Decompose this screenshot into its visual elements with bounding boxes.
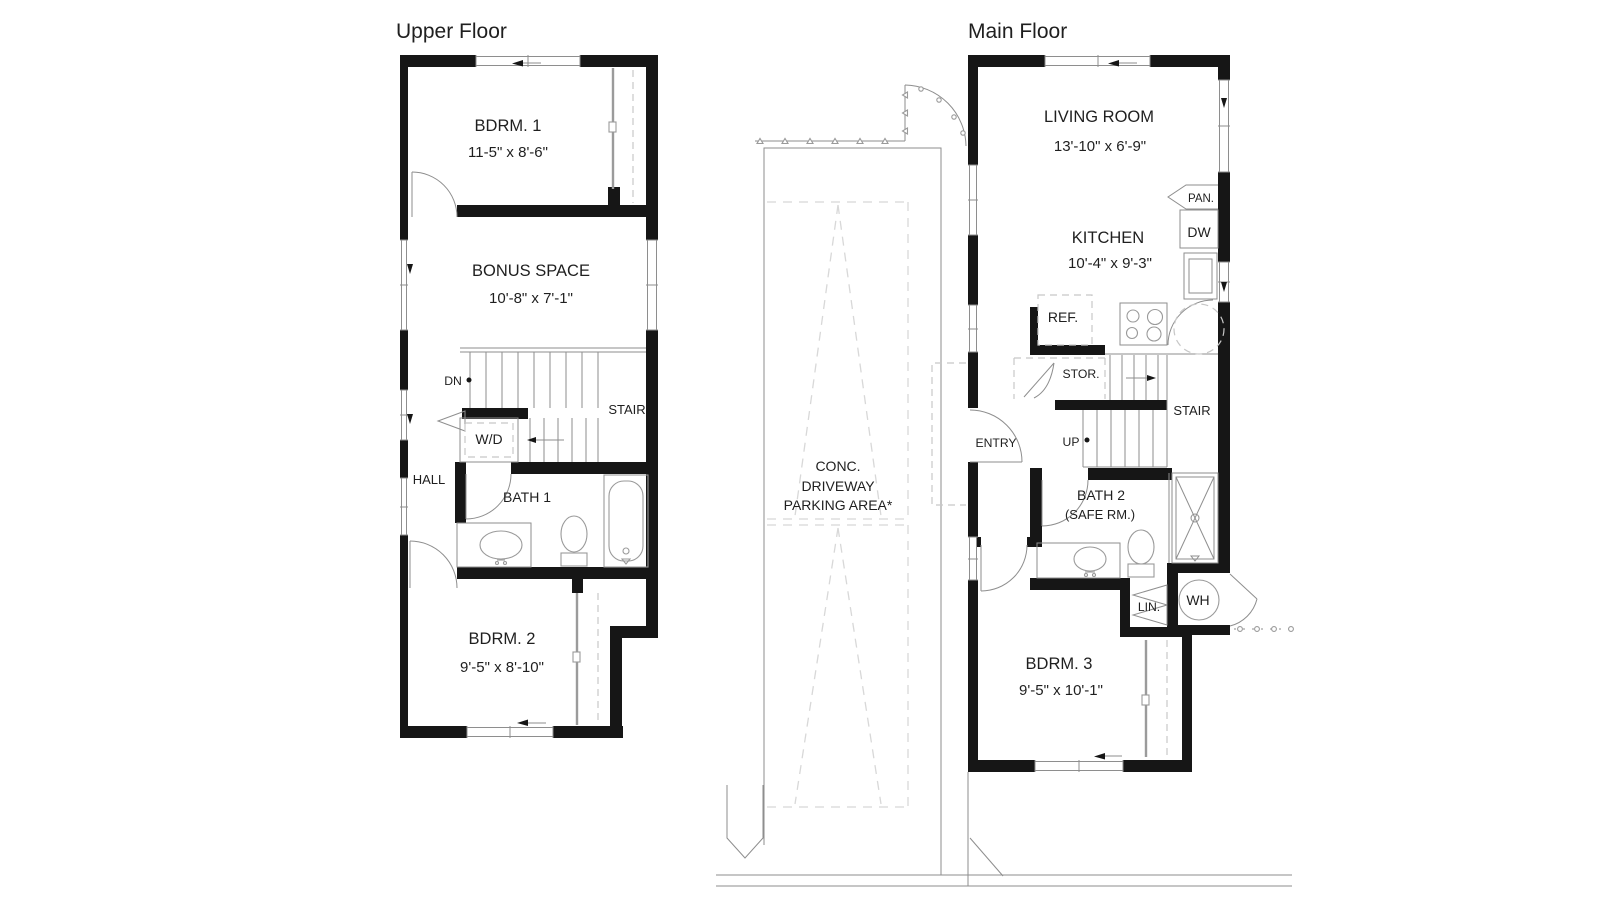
room-label-living: LIVING ROOM bbox=[1044, 108, 1154, 126]
fence-right bbox=[1234, 627, 1293, 632]
window bbox=[400, 390, 408, 440]
room-dims-bdrm1: 11-5" x 8'-6" bbox=[468, 144, 548, 161]
room-dims-bdrm2: 9'-5" x 8'-10" bbox=[460, 659, 544, 676]
dn-marker-dot bbox=[467, 378, 472, 383]
bdrm3-door bbox=[981, 545, 1027, 591]
room-label-bath2: BATH 2 bbox=[1077, 487, 1125, 503]
sink bbox=[480, 531, 522, 559]
floor-plan-sheet: Upper Floor bbox=[0, 0, 1600, 905]
table-dashed bbox=[1174, 304, 1224, 354]
window bbox=[646, 240, 658, 330]
pantry-label: PAN. bbox=[1188, 193, 1214, 205]
hall-label: HALL bbox=[413, 472, 446, 487]
bdrm2-door bbox=[410, 541, 457, 588]
window bbox=[400, 478, 408, 535]
laundry-closet-door bbox=[438, 411, 465, 431]
room-label-bonus: BONUS SPACE bbox=[472, 262, 590, 280]
window bbox=[476, 55, 580, 67]
window bbox=[968, 305, 978, 352]
window bbox=[467, 726, 553, 738]
room-dims-bdrm3: 9'-5" x 10'-1" bbox=[1019, 682, 1103, 699]
driveway-label-line3: PARKING AREA* bbox=[784, 497, 893, 513]
room-dims-living: 13'-10" x 6'-9" bbox=[1054, 138, 1146, 155]
stair-direction-arrow bbox=[1147, 375, 1156, 381]
window bbox=[1045, 55, 1150, 67]
room-label-bdrm2: BDRM. 2 bbox=[469, 630, 536, 648]
sink bbox=[1074, 547, 1106, 571]
stove bbox=[1120, 303, 1167, 345]
wh-door bbox=[1230, 574, 1257, 626]
toilet-tank bbox=[561, 553, 587, 566]
fence bbox=[755, 85, 966, 146]
bdrm1-door bbox=[412, 172, 457, 217]
bath1-fixtures bbox=[457, 475, 648, 567]
driveway-label-line1: CONC. bbox=[815, 458, 860, 474]
room-label-bdrm1: BDRM. 1 bbox=[475, 117, 542, 135]
entry-label: ENTRY bbox=[975, 436, 1016, 450]
stair-label-upper: STAIR bbox=[608, 402, 645, 417]
room-dims-kitchen: 10'-4" x 9'-3" bbox=[1068, 255, 1152, 272]
wd-label: W/D bbox=[475, 431, 502, 447]
floor-plan-drawing: Upper Floor bbox=[0, 0, 1600, 905]
window bbox=[968, 537, 978, 580]
main-floor-title: Main Floor bbox=[968, 20, 1067, 43]
shower bbox=[1169, 473, 1218, 563]
driveway-entry-arrow bbox=[727, 785, 763, 858]
window bbox=[968, 165, 978, 235]
entry-porch-pad bbox=[932, 363, 966, 505]
stair-label-main: STAIR bbox=[1173, 403, 1210, 418]
refrigerator-label: REF. bbox=[1048, 309, 1078, 325]
stair-direction-arrow bbox=[527, 437, 536, 443]
room-sublabel-bath2: (SAFE RM.) bbox=[1065, 507, 1135, 522]
bdrm3-closet bbox=[1142, 640, 1167, 757]
gate-swing bbox=[905, 85, 966, 146]
driveway-label-line2: DRIVEWAY bbox=[801, 478, 875, 494]
up-label: UP bbox=[1063, 435, 1080, 449]
dn-label: DN bbox=[444, 374, 462, 388]
upper-floor-title: Upper Floor bbox=[396, 20, 507, 43]
room-label-bdrm3: BDRM. 3 bbox=[1026, 655, 1093, 673]
storage-label: STOR. bbox=[1062, 367, 1099, 381]
up-marker-dot bbox=[1085, 438, 1090, 443]
water-heater-label: WH bbox=[1186, 592, 1209, 608]
toilet-tank bbox=[1128, 564, 1154, 577]
room-dims-bonus: 10'-8" x 7'-1" bbox=[489, 290, 573, 307]
dishwasher-label: DW bbox=[1187, 224, 1211, 240]
room-label-bath1: BATH 1 bbox=[503, 489, 551, 505]
storage-door bbox=[1024, 363, 1054, 398]
window bbox=[1218, 80, 1230, 172]
room-label-kitchen: KITCHEN bbox=[1072, 229, 1144, 247]
main-floor-plan: Main Floor bbox=[968, 20, 1257, 772]
linen-label: LIN. bbox=[1138, 600, 1160, 614]
upper-floor-plan: Upper Floor bbox=[396, 20, 658, 738]
vanity bbox=[457, 523, 531, 567]
street bbox=[716, 772, 1292, 886]
toilet bbox=[561, 516, 587, 552]
vanity bbox=[1037, 543, 1120, 578]
window bbox=[400, 240, 408, 330]
bath2-fixtures bbox=[1037, 473, 1218, 578]
toilet bbox=[1128, 530, 1154, 564]
window bbox=[1035, 760, 1123, 772]
